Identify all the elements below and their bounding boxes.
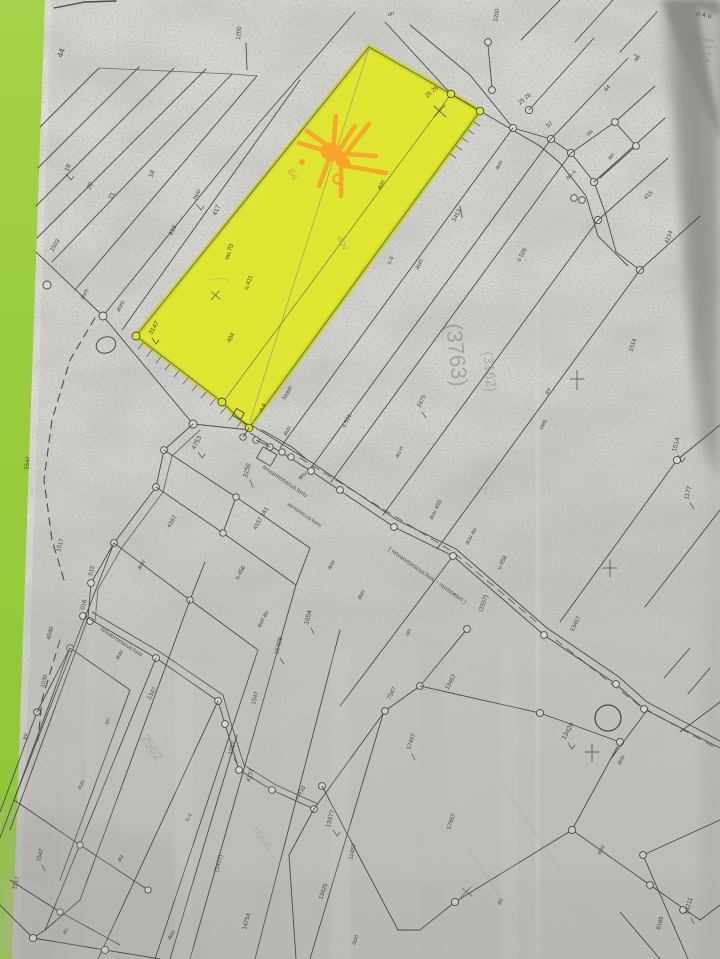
svg-text:1200: 1200 [236,26,243,40]
svg-text:au: au [22,733,29,741]
svg-text:nu au: nu au [700,57,710,63]
svg-text:un: un [387,11,395,18]
